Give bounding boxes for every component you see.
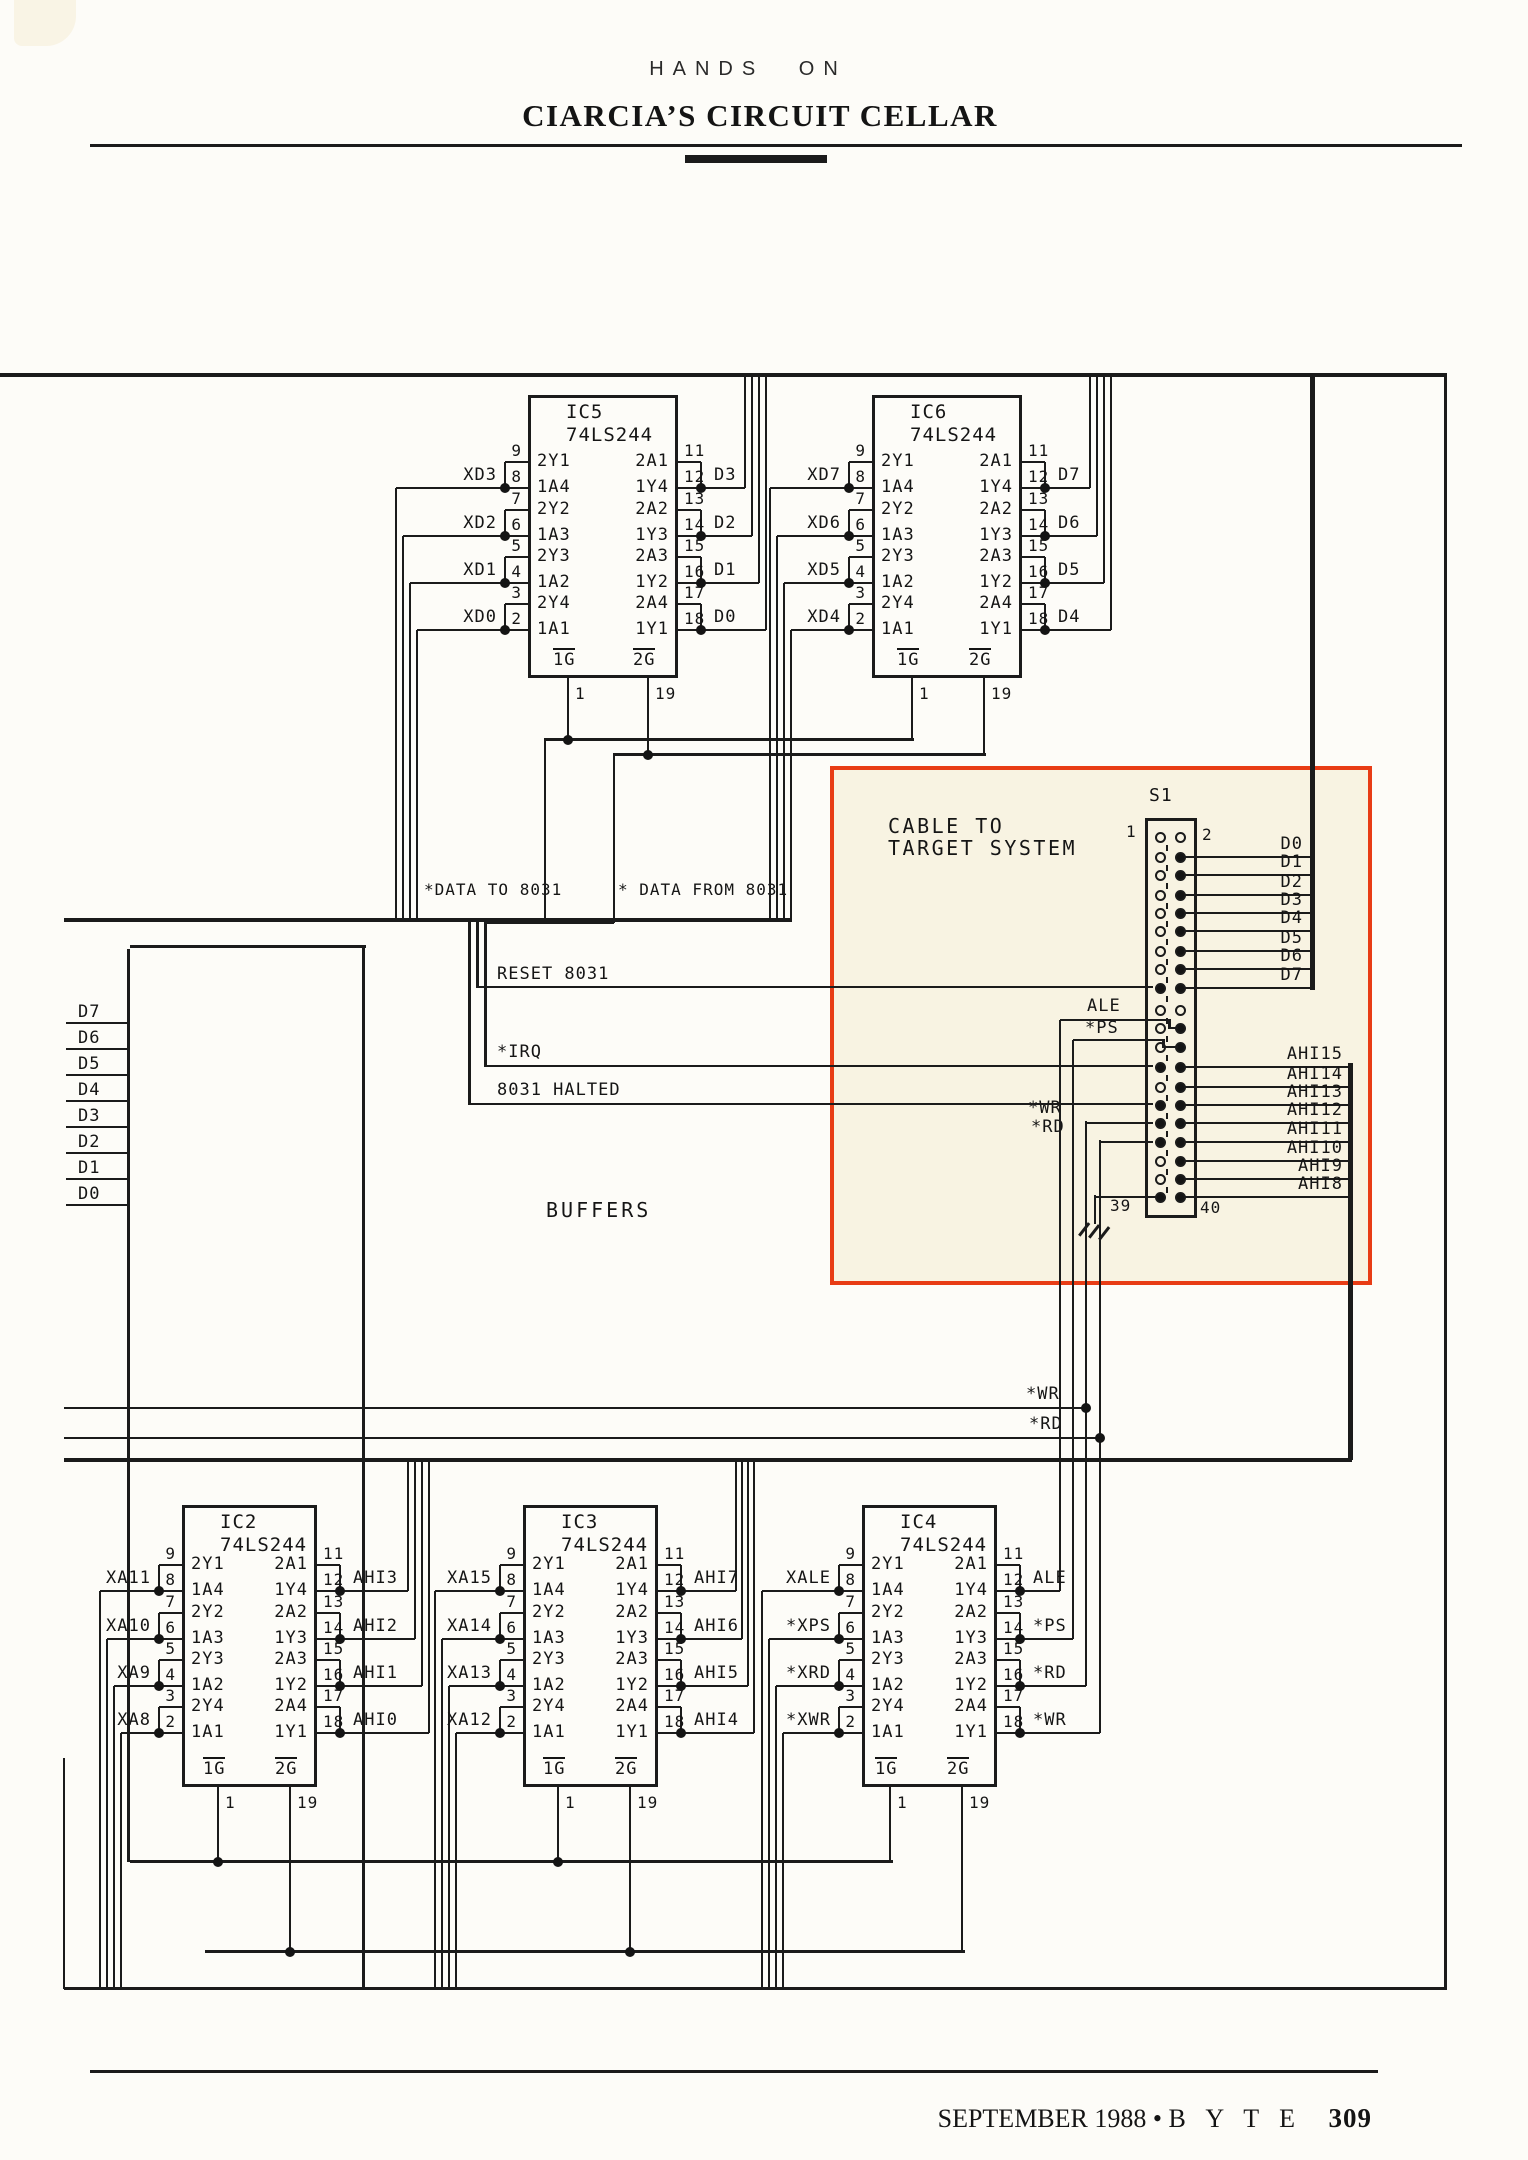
gate-enable-label: 1G [203, 1757, 225, 1778]
pin-label: 2A2 [608, 501, 669, 518]
pin-label: 1A4 [191, 1582, 225, 1599]
pin-label: 1Y3 [927, 1630, 988, 1647]
pin-label: 1Y4 [927, 1582, 988, 1599]
output-bus-riser [407, 1460, 410, 1591]
pin-number: 8 [497, 1572, 517, 1588]
gate-enable-label: 1G [543, 1757, 565, 1778]
pin-label: 1Y2 [608, 574, 669, 591]
output-signal-label: *PS [1033, 1618, 1067, 1635]
pin-label: 1A4 [871, 1582, 905, 1599]
s1-pin-right [1175, 926, 1186, 937]
bus-wire [64, 1407, 1088, 1410]
output-signal-label: D7 [1058, 467, 1080, 484]
s1-pin-right [1175, 852, 1186, 863]
bus-wire [130, 1860, 893, 1863]
pin-number: 13 [323, 1594, 344, 1610]
gate-pin-number: 19 [655, 686, 676, 702]
bus-wire [130, 945, 366, 948]
s1-cable-dash [1166, 883, 1168, 889]
pin-label: 2Y4 [537, 595, 571, 612]
pin-stub [159, 1706, 182, 1709]
input-wire [410, 582, 528, 585]
s1-pin-left [1155, 1082, 1166, 1093]
s1-pin-left [1155, 832, 1166, 843]
pin-number: 5 [156, 1641, 176, 1657]
pin-stub [839, 1564, 862, 1567]
pin-number: 15 [323, 1641, 344, 1657]
output-signal-label: D5 [1058, 562, 1080, 579]
address-signal-label: AHI11 [1268, 1121, 1343, 1138]
pin-label: 2A4 [952, 595, 1013, 612]
pin-label: 2A1 [247, 1556, 308, 1573]
s1-pin1-number: 1 [1126, 824, 1137, 840]
pin-label: 2A1 [588, 1556, 649, 1573]
bus-wire [64, 918, 792, 922]
s1-cable-dash [1166, 921, 1168, 927]
pin-stub [849, 509, 872, 512]
pin-number: 9 [156, 1546, 176, 1562]
wr-bus-label: *WR [1026, 1386, 1060, 1403]
s1-pin-right [1175, 1062, 1186, 1073]
input-bus-riser [768, 1639, 771, 1988]
pin-number: 16 [323, 1667, 344, 1683]
pin-label: 2A1 [952, 453, 1013, 470]
pin-label: 1A3 [532, 1630, 566, 1647]
s1-pin-right [1175, 983, 1186, 994]
s1-pin-right [1175, 1005, 1186, 1016]
pin-label: 2Y1 [191, 1556, 225, 1573]
gate-enable-label: 1G [553, 648, 575, 669]
pin-number: 13 [684, 491, 705, 507]
pin-stub [849, 603, 872, 606]
s1-pin-left [1155, 1005, 1166, 1016]
pin-label: 2Y3 [537, 548, 571, 565]
data-signal-label: D0 [1238, 836, 1303, 853]
s1-pin-right [1175, 1118, 1186, 1129]
pin-stub [505, 603, 528, 606]
input-bus-riser [790, 630, 793, 920]
pin-number: 14 [1028, 517, 1049, 533]
input-wire [417, 629, 528, 632]
cable-caption-line1: CABLE TO [888, 816, 1004, 836]
gate-stub [557, 1787, 560, 1862]
pin-label: 1A4 [537, 479, 571, 496]
pin-label: 1Y2 [952, 574, 1013, 591]
input-bus-riser [434, 1591, 437, 1988]
input-bus-riser [416, 630, 419, 920]
pin-label: 2Y3 [191, 1651, 225, 1668]
input-signal-label: XALE [753, 1570, 831, 1587]
input-bus-riser [441, 1639, 444, 1988]
pin-stub [997, 1564, 1020, 1567]
gate-pin-number: 1 [225, 1795, 236, 1811]
bus-wire [1095, 1196, 1156, 1199]
pin-number: 6 [156, 1620, 176, 1636]
gate-pin-number: 1 [897, 1795, 908, 1811]
output-signal-label: *WR [1033, 1712, 1067, 1729]
pin-number: 7 [836, 1594, 856, 1610]
bus-wire [63, 1758, 66, 1989]
input-bus-riser [99, 1591, 102, 1988]
s1-pin-left [1155, 1137, 1166, 1148]
input-signal-label: XA10 [73, 1618, 151, 1635]
gate-enable-label: 1G [897, 648, 919, 669]
pin-label: 2Y1 [881, 453, 915, 470]
s1-cable-dash [1166, 1113, 1168, 1119]
input-wire [783, 1732, 862, 1735]
input-wire [456, 1732, 523, 1735]
pin-number: 18 [684, 611, 705, 627]
bus-wire [1310, 373, 1315, 990]
pin-number: 3 [156, 1688, 176, 1704]
s1-pin-right [1175, 890, 1186, 901]
output-bus-riser [747, 1460, 750, 1686]
s1-cable-dash [1166, 1075, 1168, 1081]
bus-wire [1060, 1019, 1170, 1022]
s1-pin-left [1155, 983, 1166, 994]
bus-wire [1348, 1063, 1353, 1460]
pin-stub [159, 1659, 182, 1662]
pin-number: 4 [502, 564, 522, 580]
output-signal-label: AHI7 [694, 1570, 739, 1587]
s1-cable-dash [1166, 903, 1168, 909]
gate-stub [647, 678, 650, 755]
s1-pin-left [1155, 1062, 1166, 1073]
left-bus-stub [66, 1100, 130, 1103]
pin-stub [1022, 556, 1045, 559]
pin-number: 8 [836, 1572, 856, 1588]
pin-number: 14 [1003, 1620, 1024, 1636]
left-bus-stub [66, 1178, 130, 1181]
address-signal-label: AHI8 [1268, 1176, 1343, 1193]
pin-stub [159, 1564, 182, 1567]
input-bus-riser [775, 1686, 778, 1988]
pin-stub [997, 1659, 1020, 1662]
cable-caption-line2: TARGET SYSTEM [888, 838, 1077, 858]
pin-stub [500, 1564, 523, 1567]
junction-dot [213, 1857, 223, 1867]
input-signal-label: XD6 [763, 515, 841, 532]
pin-label: 1Y4 [247, 1582, 308, 1599]
pin-stub [317, 1659, 340, 1662]
input-signal-label: XA12 [414, 1712, 492, 1729]
gate-pin-number: 19 [637, 1795, 658, 1811]
pin-number: 5 [846, 538, 866, 554]
data-signal-label: D7 [1238, 967, 1303, 984]
pin-label: 1A2 [191, 1677, 225, 1694]
gate-enable-label: 2G [615, 1757, 637, 1778]
output-signal-label: ALE [1033, 1570, 1067, 1587]
gate-stub [961, 1787, 964, 1952]
pin-stub [658, 1564, 681, 1567]
pin-stub [849, 461, 872, 464]
pin-label: 1Y3 [952, 527, 1013, 544]
bus-wire [1086, 1122, 1153, 1125]
pin-label: 1A1 [881, 621, 915, 638]
output-signal-label: D4 [1058, 609, 1080, 626]
pin-label: 2A4 [927, 1698, 988, 1715]
s1-pin-left [1155, 1156, 1166, 1167]
pin-number: 17 [1003, 1688, 1024, 1704]
s1-cable-dash [1166, 977, 1168, 983]
pin-number: 15 [1028, 538, 1049, 554]
data-signal-label: D2 [1238, 874, 1303, 891]
pin-label: 1Y2 [247, 1677, 308, 1694]
s1-pin-left [1155, 926, 1166, 937]
s1-pin-right [1175, 1137, 1186, 1148]
output-signal-label: AHI0 [353, 1712, 398, 1729]
s1-cable-dash [1166, 865, 1168, 871]
bus-wire [486, 921, 614, 924]
pin-label: 1Y2 [588, 1677, 649, 1694]
bus-wire [0, 373, 1447, 377]
address-signal-label: AHI15 [1268, 1046, 1343, 1063]
bus-wire [64, 1987, 1447, 1991]
output-bus-riser [1110, 375, 1113, 630]
pin-number: 18 [1003, 1714, 1024, 1730]
input-bus-riser [106, 1639, 109, 1988]
input-signal-label: XD1 [419, 562, 497, 579]
left-bus-label: D1 [78, 1160, 100, 1177]
pin-label: 2A3 [927, 1651, 988, 1668]
left-bus-label: D2 [78, 1134, 100, 1151]
output-signal-label: AHI2 [353, 1618, 398, 1635]
pin-label: 2A2 [952, 501, 1013, 518]
s1-pin-left [1155, 1023, 1166, 1034]
junction-dot [1081, 1403, 1091, 1413]
bus-wire [544, 738, 547, 920]
pin-label: 2A4 [588, 1698, 649, 1715]
rd-bus-label: *RD [1029, 1416, 1063, 1433]
pin-number: 11 [323, 1546, 344, 1562]
pin-label: 2Y2 [881, 501, 915, 518]
pin-stub [839, 1659, 862, 1662]
s1-connector-label: S1 [1149, 787, 1173, 805]
pin-label: 2Y2 [537, 501, 571, 518]
left-bus-label: D0 [78, 1186, 100, 1203]
pin-stub [317, 1706, 340, 1709]
left-bus-stub [66, 1126, 130, 1129]
input-bus-riser [120, 1733, 123, 1988]
ale-s1-label: ALE [1087, 998, 1121, 1015]
s1-pin39-number: 39 [1110, 1198, 1131, 1214]
pin-stub [678, 461, 701, 464]
output-wire [658, 1732, 754, 1735]
left-bus-label: D4 [78, 1082, 100, 1099]
gate-stub [567, 678, 570, 740]
left-bus-label: D7 [78, 1004, 100, 1021]
left-bus-stub [66, 1022, 130, 1025]
pin-label: 2Y4 [191, 1698, 225, 1715]
pin-number: 8 [502, 469, 522, 485]
pin-number: 8 [846, 469, 866, 485]
pin-stub [1022, 603, 1045, 606]
s1-cable-dash [1166, 939, 1168, 945]
pin-label: 2A4 [608, 595, 669, 612]
pin-number: 4 [846, 564, 866, 580]
pin-stub [849, 556, 872, 559]
halted-label: 8031 HALTED [497, 1082, 621, 1099]
gate-pin-number: 19 [297, 1795, 318, 1811]
pin-number: 2 [836, 1714, 856, 1730]
pin-stub [839, 1706, 862, 1709]
gate-stub [889, 1787, 892, 1862]
chip-ref: IC2 [220, 1513, 257, 1532]
schematic-canvas: CABLE TO TARGET SYSTEM S1 1 2 39 40 BUFF… [0, 0, 1528, 2160]
pin-number: 18 [1028, 611, 1049, 627]
output-signal-label: D0 [714, 609, 736, 626]
pin-stub [658, 1612, 681, 1615]
input-wire [121, 1732, 182, 1735]
footer-issue: SEPTEMBER 1988 [938, 2104, 1147, 2133]
gate-stub [983, 678, 986, 755]
gate-stub [217, 1787, 220, 1862]
input-signal-label: *XRD [753, 1665, 831, 1682]
bus-wire [64, 1437, 1102, 1440]
pin-label: 2Y4 [881, 595, 915, 612]
pin-number: 13 [1003, 1594, 1024, 1610]
input-signal-label: XA11 [73, 1570, 151, 1587]
pin-number: 14 [664, 1620, 685, 1636]
pin-label: 1Y3 [247, 1630, 308, 1647]
chip-part: 74LS244 [910, 426, 997, 445]
pin-number: 2 [502, 611, 522, 627]
chip-part: 74LS244 [561, 1536, 648, 1555]
input-bus-riser [776, 536, 779, 920]
s1-cable-dash [1166, 1169, 1168, 1175]
pin-number: 9 [846, 443, 866, 459]
s1-pin-right [1175, 946, 1186, 957]
chip-part: 74LS244 [900, 1536, 987, 1555]
junction-dot [625, 1947, 635, 1957]
pin-number: 6 [836, 1620, 856, 1636]
chip-ref: IC5 [566, 403, 603, 422]
pin-label: 2Y4 [532, 1698, 566, 1715]
footer-magazine: B Y T E [1168, 2104, 1302, 2133]
pin-number: 6 [846, 517, 866, 533]
pin-label: 1Y4 [608, 479, 669, 496]
chip-ref: IC6 [910, 403, 947, 422]
pin-label: 2Y3 [871, 1651, 905, 1668]
left-bus-stub [66, 1152, 130, 1155]
s1-pin-right [1175, 964, 1186, 975]
pin-label: 1A4 [532, 1582, 566, 1599]
bus-wire [613, 755, 616, 923]
buffers-section-label: BUFFERS [546, 1200, 651, 1220]
data-signal-label: D3 [1238, 892, 1303, 909]
s1-cable-dash [1166, 1036, 1168, 1042]
pin-stub [317, 1612, 340, 1615]
s1-pin-right [1175, 1192, 1186, 1203]
output-signal-label: D2 [714, 515, 736, 532]
pin-number: 4 [836, 1667, 856, 1683]
junction-dot [643, 750, 653, 760]
pin-number: 11 [1028, 443, 1049, 459]
pin-number: 13 [664, 1594, 685, 1610]
bus-wire [362, 945, 365, 1989]
pin-number: 11 [664, 1546, 685, 1562]
pin-label: 1Y1 [952, 621, 1013, 638]
pin-label: 1A1 [871, 1724, 905, 1741]
input-signal-label: XD5 [763, 562, 841, 579]
pin-label: 1A2 [871, 1677, 905, 1694]
bus-wire [64, 1458, 1352, 1462]
output-signal-label: AHI1 [353, 1665, 398, 1682]
gate-stub [911, 678, 914, 740]
irq-label: *IRQ [497, 1044, 542, 1061]
gate-enable-label: 2G [947, 1757, 969, 1778]
address-signal-label: AHI12 [1268, 1102, 1343, 1119]
pin-label: 2A3 [608, 548, 669, 565]
pin-stub [1022, 509, 1045, 512]
s1-cable-dash [1166, 1095, 1168, 1101]
s1-pin-left [1155, 1192, 1166, 1203]
pin-label: 2Y2 [532, 1604, 566, 1621]
gate-pin-number: 19 [969, 1795, 990, 1811]
bus-wire [1168, 1027, 1178, 1030]
reset-8031-label: RESET 8031 [497, 966, 609, 983]
pin-stub [1022, 461, 1045, 464]
pin-stub [839, 1612, 862, 1615]
bus-wire [476, 986, 1153, 989]
pin-stub [678, 556, 701, 559]
pin-number: 15 [664, 1641, 685, 1657]
pin-stub [678, 603, 701, 606]
output-wire [997, 1732, 1100, 1735]
s1-cable-dash [1166, 959, 1168, 965]
address-signal-label: AHI9 [1268, 1158, 1343, 1175]
chip-part: 74LS244 [220, 1536, 307, 1555]
data-signal-label: D4 [1238, 910, 1303, 927]
s1-pin-left [1155, 852, 1166, 863]
pin-number: 16 [1003, 1667, 1024, 1683]
pin-label: 2A1 [608, 453, 669, 470]
pin-label: 1A1 [191, 1724, 225, 1741]
input-signal-label: *XWR [753, 1712, 831, 1729]
data-signal-label: D1 [1238, 854, 1303, 871]
pin-number: 11 [684, 443, 705, 459]
output-signal-label: D1 [714, 562, 736, 579]
input-signal-label: XA9 [73, 1665, 151, 1682]
gate-pin-number: 1 [565, 1795, 576, 1811]
output-signal-label: AHI6 [694, 1618, 739, 1635]
output-signal-label: AHI3 [353, 1570, 398, 1587]
pin-label: 2Y4 [871, 1698, 905, 1715]
output-bus-riser [1089, 375, 1092, 488]
gate-enable-label: 2G [969, 648, 991, 669]
input-bus-riser [402, 536, 405, 920]
pin-number: 7 [156, 1594, 176, 1610]
output-wire [317, 1732, 429, 1735]
output-signal-label: AHI5 [694, 1665, 739, 1682]
pin-number: 2 [497, 1714, 517, 1730]
pin-label: 1A3 [881, 527, 915, 544]
pin-label: 2A2 [927, 1604, 988, 1621]
pin-stub [500, 1612, 523, 1615]
input-signal-label: XD2 [419, 515, 497, 532]
data-signal-wire [1185, 987, 1310, 990]
bus-wire [1073, 1039, 1164, 1042]
gate-pin-number: 19 [991, 686, 1012, 702]
pin-label: 1A2 [537, 574, 571, 591]
output-wire [1022, 629, 1111, 632]
footer-page-number: 309 [1329, 2103, 1373, 2133]
s1-pin-right [1175, 1100, 1186, 1111]
s1-pin-right [1175, 832, 1186, 843]
pin-number: 9 [497, 1546, 517, 1562]
pin-label: 1A4 [881, 479, 915, 496]
bus-wire [127, 949, 130, 1862]
